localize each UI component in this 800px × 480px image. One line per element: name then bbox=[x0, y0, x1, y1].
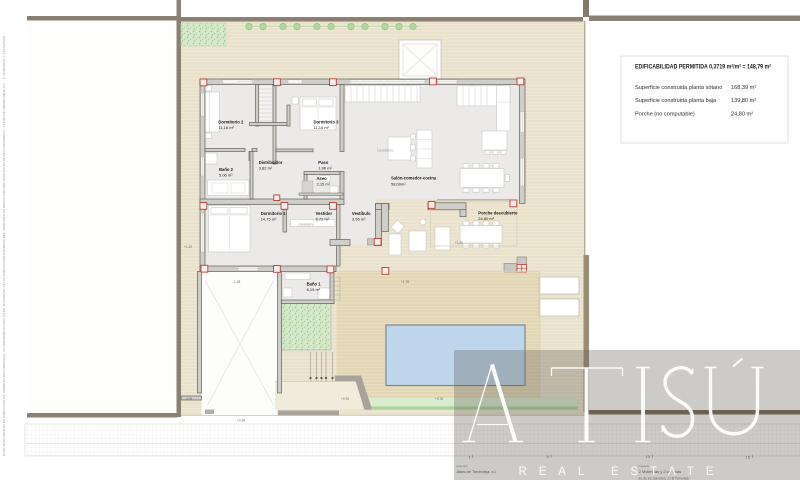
svg-text:1,96 m²: 1,96 m² bbox=[318, 166, 332, 171]
svg-text:Dormitorio 1: Dormitorio 1 bbox=[261, 211, 287, 216]
svg-text:11,14 m²: 11,14 m² bbox=[314, 125, 330, 130]
svg-text:24,80 m²: 24,80 m² bbox=[731, 112, 753, 118]
svg-text:-1,28: -1,28 bbox=[233, 280, 240, 284]
svg-text:3,82 m²: 3,82 m² bbox=[259, 166, 273, 171]
svg-text:Lavandería: Lavandería bbox=[377, 149, 393, 153]
svg-text:Vestidor: Vestidor bbox=[316, 211, 333, 216]
svg-text:Salón-comedor-cocina: Salón-comedor-cocina bbox=[391, 176, 437, 181]
svg-text:+1,78: +1,78 bbox=[401, 280, 409, 284]
svg-text:168,39 m²: 168,39 m² bbox=[731, 85, 756, 91]
svg-text:+0,76: +0,76 bbox=[435, 397, 443, 401]
svg-text:Distribuidor: Distribuidor bbox=[259, 160, 283, 165]
svg-text:11,16 m²: 11,16 m² bbox=[218, 125, 234, 130]
svg-text:+1,30: +1,30 bbox=[455, 241, 463, 245]
svg-text:Vestíbulo: Vestíbulo bbox=[352, 211, 371, 216]
svg-text:Paso: Paso bbox=[318, 160, 328, 165]
svg-text:2,15 m²: 2,15 m² bbox=[317, 182, 331, 187]
svg-text:EDIFICABILIDAD PERMITIDA 0,371: EDIFICABILIDAD PERMITIDA 0,3719 m²/m² = … bbox=[635, 64, 771, 71]
svg-text:Dormitorio 3: Dormitorio 3 bbox=[314, 120, 340, 125]
svg-text:ESTE DOCUMENTO ES COPIA DIGITA: ESTE DOCUMENTO ES COPIA DIGITAL IMPRESA … bbox=[3, 35, 6, 456]
svg-text:+0,76: +0,76 bbox=[341, 397, 349, 401]
svg-text:Dormitorio 2: Dormitorio 2 bbox=[218, 120, 244, 125]
svg-text:139,80 m²: 139,80 m² bbox=[731, 98, 756, 104]
svg-text:14,75 m²: 14,75 m² bbox=[261, 217, 277, 222]
svg-text:5,06 m²: 5,06 m² bbox=[219, 173, 233, 178]
svg-text:Porche descubierto: Porche descubierto bbox=[478, 211, 518, 216]
svg-text:Porche (no computable): Porche (no computable) bbox=[635, 112, 695, 118]
svg-text:24,80 m²: 24,80 m² bbox=[478, 216, 494, 221]
svg-text:+0,28: +0,28 bbox=[237, 419, 245, 423]
svg-text:Baño 1: Baño 1 bbox=[307, 282, 322, 287]
svg-text:Aseo: Aseo bbox=[317, 176, 328, 181]
svg-text:0,08: 0,08 bbox=[186, 397, 192, 401]
svg-text:Baño 2: Baño 2 bbox=[219, 167, 234, 172]
svg-text:3,56 m²: 3,56 m² bbox=[352, 217, 366, 222]
svg-text:58,00m²: 58,00m² bbox=[391, 181, 406, 186]
svg-text:Lavandería: Lavandería bbox=[298, 223, 314, 227]
svg-text:Superficie construida planta b: Superficie construida planta baja bbox=[635, 98, 717, 104]
svg-text:5,72 m²: 5,72 m² bbox=[316, 217, 330, 222]
svg-text:6,19 m²: 6,19 m² bbox=[307, 287, 321, 292]
svg-text:Superficie construida planta s: Superficie construida planta sótano bbox=[635, 85, 722, 91]
svg-text:+1,20: +1,20 bbox=[184, 245, 192, 249]
